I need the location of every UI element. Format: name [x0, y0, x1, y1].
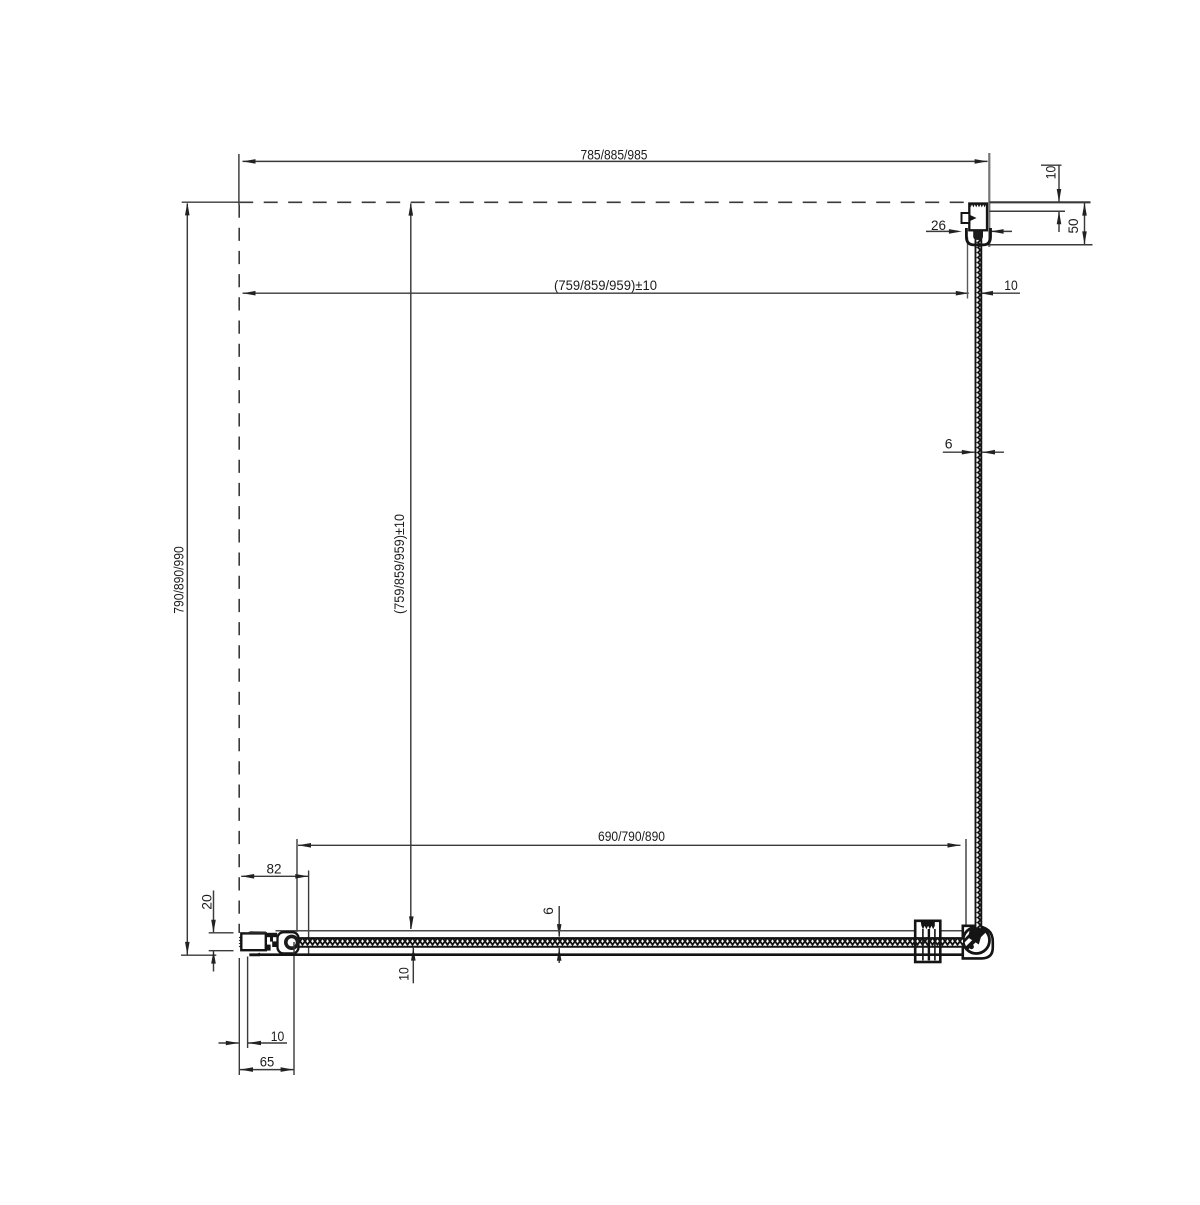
svg-text:6: 6 [540, 907, 556, 915]
svg-text:(759/859/959)±10: (759/859/959)±10 [554, 277, 657, 293]
svg-text:690/790/890: 690/790/890 [598, 828, 665, 844]
svg-text:785/885/985: 785/885/985 [581, 147, 648, 163]
svg-text:10: 10 [1043, 166, 1059, 180]
svg-text:20: 20 [199, 894, 215, 910]
svg-text:82: 82 [267, 861, 282, 877]
svg-text:10: 10 [1004, 277, 1018, 293]
svg-text:10: 10 [271, 1028, 285, 1044]
svg-text:50: 50 [1065, 218, 1081, 233]
svg-text:65: 65 [260, 1054, 275, 1070]
svg-text:790/890/990: 790/890/990 [171, 546, 187, 614]
svg-text:6: 6 [945, 436, 953, 452]
svg-text:26: 26 [931, 217, 946, 233]
svg-text:10: 10 [396, 967, 412, 981]
svg-text:(759/859/959)±10: (759/859/959)±10 [391, 514, 407, 614]
